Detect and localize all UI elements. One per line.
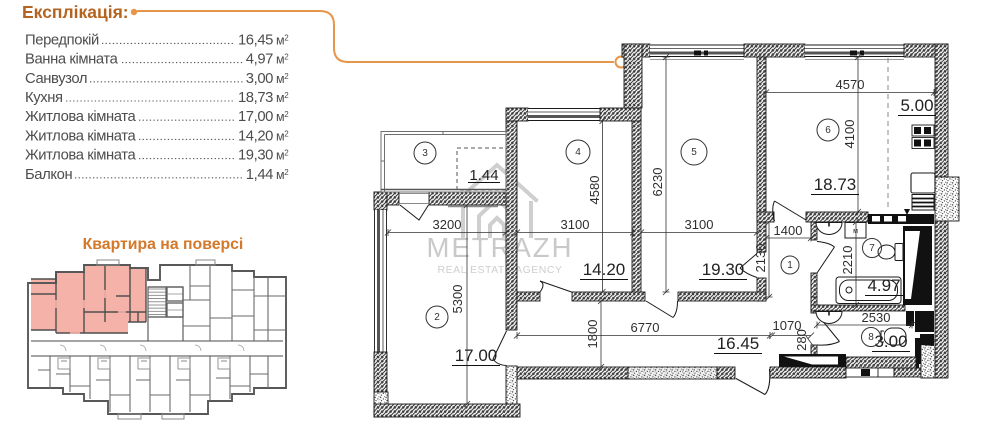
svg-text:4: 4 [575,147,581,158]
svg-text:4580: 4580 [587,176,602,205]
svg-text:14.20: 14.20 [583,260,626,279]
svg-text:1400: 1400 [774,223,803,238]
svg-text:5300: 5300 [450,285,465,314]
svg-text:2130: 2130 [753,244,768,273]
svg-text:6770: 6770 [631,320,660,335]
svg-text:2: 2 [434,312,440,323]
svg-text:Кухня: Кухня [25,90,63,106]
svg-text:6230: 6230 [650,168,665,197]
svg-text:Житлова кімната: Житлова кімната [25,148,136,164]
svg-text:3,00: 3,00 [246,71,273,87]
svg-text:17.00: 17.00 [455,346,498,365]
svg-text:Квартира на поверсі: Квартира на поверсі [83,236,244,253]
svg-text:4100: 4100 [842,120,857,149]
svg-text:7: 7 [869,243,875,254]
svg-text:4,97: 4,97 [246,52,273,68]
svg-text:Житлова кімната: Житлова кімната [25,109,136,125]
svg-text:м: м [853,228,858,235]
svg-text:5.00: 5.00 [900,96,933,115]
svg-text:16,45: 16,45 [238,32,273,48]
svg-text:14,20: 14,20 [238,128,273,144]
svg-text:4570: 4570 [836,77,865,92]
svg-text:3100: 3100 [685,217,714,232]
svg-text:17,00: 17,00 [238,109,273,125]
svg-text:3: 3 [422,148,428,159]
svg-text:Ванна кімната: Ванна кімната [25,52,119,68]
svg-text:Експлікація:: Експлікація: [22,2,129,22]
svg-text:Санвузол: Санвузол [25,71,87,87]
svg-text:4.97: 4.97 [867,276,900,295]
svg-text:1.44: 1.44 [469,167,498,184]
svg-text:8: 8 [868,332,874,343]
svg-text:6: 6 [825,125,831,136]
svg-text:1800: 1800 [585,320,600,349]
svg-text:REAL ESTATE AGENCY: REAL ESTATE AGENCY [438,264,563,276]
svg-text:18,73: 18,73 [238,90,273,106]
svg-text:2210: 2210 [840,246,855,275]
svg-text:3100: 3100 [561,217,590,232]
svg-text:1,44: 1,44 [246,167,273,183]
svg-text:Балкон: Балкон [25,167,72,183]
svg-text:2530: 2530 [862,310,891,325]
svg-text:METRAZH: METRAZH [427,232,574,263]
svg-text:Передпокій: Передпокій [25,32,99,48]
svg-text:19,30: 19,30 [238,148,273,164]
svg-text:16.45: 16.45 [717,334,760,353]
svg-text:1: 1 [787,260,793,271]
svg-text:Житлова кімната: Житлова кімната [25,128,136,144]
svg-text:5: 5 [691,147,697,158]
svg-text:280: 280 [794,329,809,351]
svg-text:3200: 3200 [433,217,462,232]
svg-text:19.30: 19.30 [702,260,745,279]
svg-text:18.73: 18.73 [814,175,857,194]
